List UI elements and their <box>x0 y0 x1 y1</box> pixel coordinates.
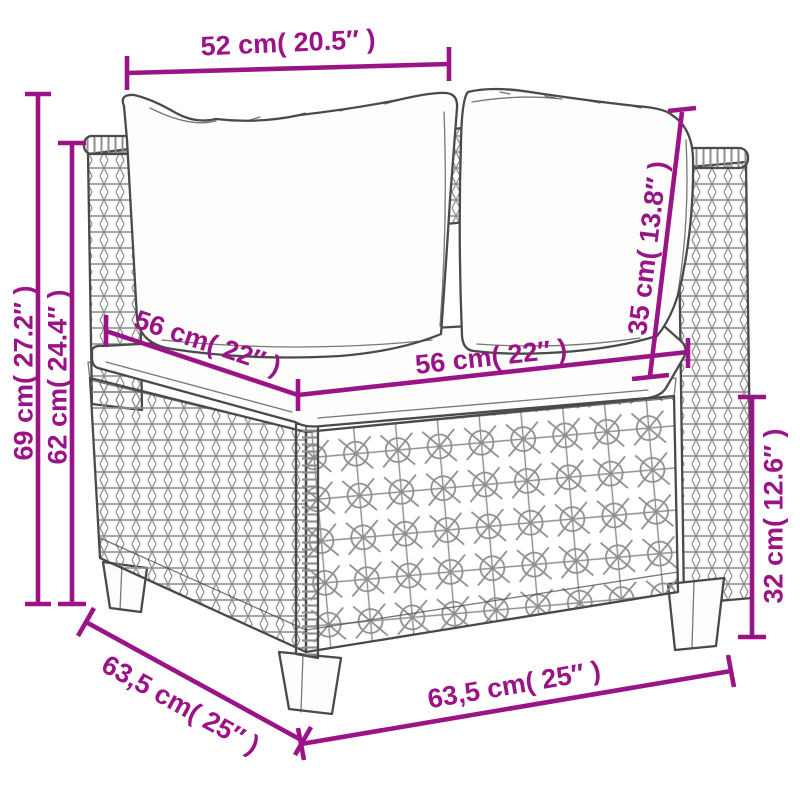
dim-bottom-width-label: 63,5 cm( 25″ ) <box>425 655 603 714</box>
diagram-canvas: 52 cm( 20.5″ ) 69 cm( 27.2″ ) 62 cm( 24.… <box>0 0 800 800</box>
dim-left-inner-height-label: 62 cm( 24.4″ ) <box>43 289 73 464</box>
end-tick <box>78 608 94 636</box>
base-left-face <box>90 378 306 652</box>
dim-top-width-label: 52 cm( 20.5″ ) <box>200 24 376 62</box>
dim-base-height-label: 32 cm( 12.6″ ) <box>759 428 789 603</box>
dim-left-inner-height: 62 cm( 24.4″ ) <box>43 143 86 604</box>
end-tick <box>298 728 304 760</box>
base-front-face <box>306 396 678 652</box>
dim-left-outer-height-label: 69 cm( 27.2″ ) <box>9 285 39 460</box>
end-tick <box>728 655 734 687</box>
leg-front-center <box>279 652 341 714</box>
end-tick <box>668 108 696 111</box>
dim-top-width: 52 cm( 20.5″ ) <box>127 24 449 90</box>
dimension-diagram: 52 cm( 20.5″ ) 69 cm( 27.2″ ) 62 cm( 24.… <box>0 0 800 800</box>
dim-bottom-width: 63,5 cm( 25″ ) <box>298 655 734 760</box>
base-corner-braid <box>296 422 318 658</box>
dimension-line <box>127 64 449 73</box>
